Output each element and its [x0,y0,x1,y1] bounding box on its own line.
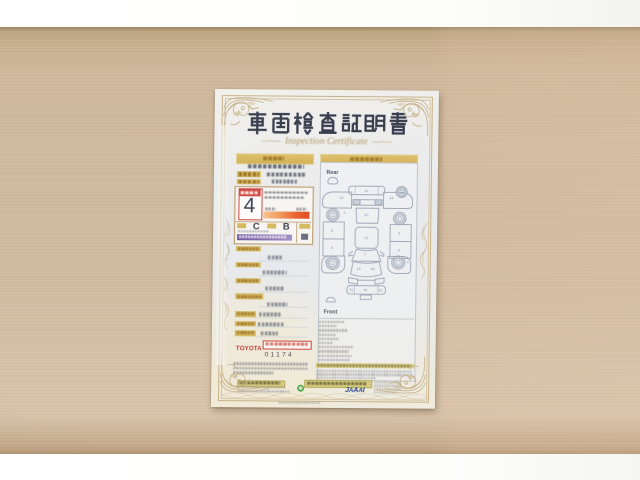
svg-text:46: 46 [371,267,375,271]
svg-text:15: 15 [357,267,361,271]
svg-text:Front: Front [324,309,338,315]
svg-text:2: 2 [343,211,345,215]
svg-text:31: 31 [378,288,382,292]
svg-text:4: 4 [407,261,409,265]
svg-text:6: 6 [398,248,400,252]
svg-text:2: 2 [364,252,366,256]
svg-text:8: 8 [398,231,400,235]
svg-text:40: 40 [364,213,368,217]
svg-text:31: 31 [349,288,353,292]
svg-text:Rear: Rear [326,170,339,176]
svg-text:44: 44 [390,196,394,200]
svg-text:8: 8 [331,229,333,233]
svg-text:4: 4 [325,260,327,264]
svg-text:42: 42 [363,288,367,292]
svg-text:43: 43 [340,196,344,200]
svg-text:6: 6 [331,246,333,250]
svg-text:41: 41 [365,189,369,193]
svg-text:19: 19 [364,236,368,240]
